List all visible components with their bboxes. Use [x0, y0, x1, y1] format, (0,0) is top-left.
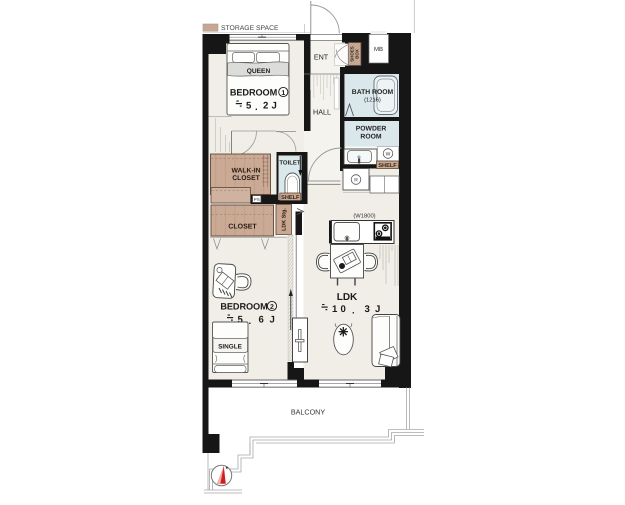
svg-text:PS: PS — [254, 197, 260, 202]
svg-text:1: 1 — [332, 304, 338, 315]
svg-text:W: W — [386, 152, 391, 158]
svg-text:J: J — [270, 315, 275, 326]
svg-text:.: . — [255, 102, 258, 113]
svg-text:3: 3 — [365, 304, 370, 315]
svg-text:(W1800): (W1800) — [353, 213, 375, 220]
svg-text:.: . — [249, 316, 252, 327]
svg-text:MB: MB — [374, 46, 383, 53]
svg-text:R: R — [354, 178, 358, 184]
svg-text:CLOSET: CLOSET — [228, 224, 257, 231]
svg-text:LDK: LDK — [337, 292, 358, 303]
svg-text:SINGLE: SINGLE — [218, 343, 243, 350]
svg-text:SHELF: SHELF — [378, 163, 397, 169]
svg-text:QUEEN: QUEEN — [247, 68, 271, 75]
svg-text:LDK Stg.: LDK Stg. — [282, 208, 288, 231]
svg-text:TOILET: TOILET — [279, 160, 301, 167]
svg-text:WALK-IN: WALK-IN — [231, 168, 260, 175]
svg-text:POWDER: POWDER — [356, 126, 387, 133]
svg-text:5: 5 — [246, 101, 252, 112]
svg-text:CLOSET: CLOSET — [232, 175, 260, 182]
svg-text:BEDROOM: BEDROOM — [220, 302, 268, 312]
svg-text:J: J — [272, 101, 277, 112]
svg-text:2: 2 — [263, 101, 268, 112]
svg-text:BEDROOM: BEDROOM — [230, 88, 278, 98]
svg-text:6: 6 — [259, 315, 264, 326]
svg-text:SHELF: SHELF — [281, 195, 300, 201]
svg-text:0: 0 — [341, 304, 346, 315]
svg-text:STORAGE SPACE: STORAGE SPACE — [221, 25, 279, 32]
svg-text:ROOM: ROOM — [360, 134, 381, 141]
svg-text:HALL: HALL — [313, 108, 331, 117]
svg-text:.: . — [352, 306, 355, 317]
svg-text:(1216): (1216) — [364, 97, 381, 104]
svg-text:2: 2 — [270, 304, 274, 311]
svg-text:ENT: ENT — [314, 53, 329, 62]
svg-text:BALCONY: BALCONY — [291, 408, 326, 417]
svg-text:1: 1 — [281, 90, 285, 97]
svg-text:BATH ROOM: BATH ROOM — [352, 89, 394, 96]
svg-text:J: J — [375, 304, 380, 315]
